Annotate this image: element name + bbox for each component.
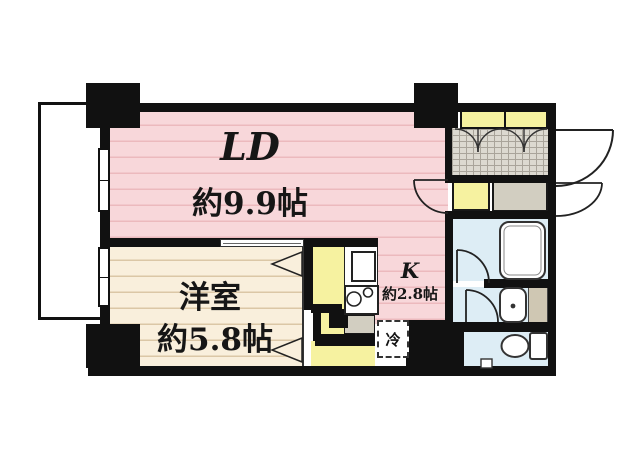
refrigerator-marker: 冷 (377, 320, 409, 358)
window-sash-divider (100, 277, 108, 278)
wall-toilet-top (445, 322, 556, 332)
counter-storage-cell (344, 315, 375, 334)
balcony (38, 102, 104, 320)
washer-space-cell (528, 286, 548, 323)
sliding-door-ld-western (220, 239, 304, 247)
wall-under-tub (484, 279, 548, 288)
pillar-top-left (86, 83, 140, 128)
entrance-door-arc (556, 130, 613, 186)
wall-right (548, 103, 556, 376)
wall-bottom (88, 366, 556, 376)
wall-closet-inner-d (315, 334, 375, 346)
wall-closet-inner-b (329, 309, 348, 328)
bathroom (452, 219, 548, 281)
toilet-room (462, 332, 548, 366)
wall-toilet-left (452, 332, 464, 366)
label-kitchen-size: 約2.8帖 (368, 283, 452, 304)
wall-block-bottom-right (406, 320, 452, 366)
entrance-genkan-tile (452, 128, 548, 178)
window-sash-divider (100, 180, 108, 181)
label-ld-name: LD (170, 124, 330, 169)
window-western-room (98, 247, 110, 307)
entry-hall-cell (452, 180, 490, 211)
label-western-size: 約5.8帖 (115, 314, 315, 359)
label-western-name: 洋室 (125, 272, 295, 317)
label-ld-size: 約9.9帖 (150, 178, 350, 223)
meter-box-cell (492, 180, 548, 212)
window-ld (98, 148, 110, 212)
wall-closet-left (304, 240, 313, 310)
wall-genkan-left (445, 128, 452, 180)
wall-cells-bottom (445, 211, 556, 219)
pillar-top-right (414, 83, 458, 128)
refrigerator-label: 冷 (385, 329, 400, 350)
meter-box-door-arc (556, 183, 602, 216)
wall-top (88, 103, 556, 112)
label-kitchen-name: K (390, 258, 430, 283)
sliding-door-rail (223, 243, 302, 244)
kitchen-counter (344, 245, 378, 315)
wall-genkan-bottom (445, 175, 556, 183)
floor-plan: 冷 (0, 0, 640, 455)
